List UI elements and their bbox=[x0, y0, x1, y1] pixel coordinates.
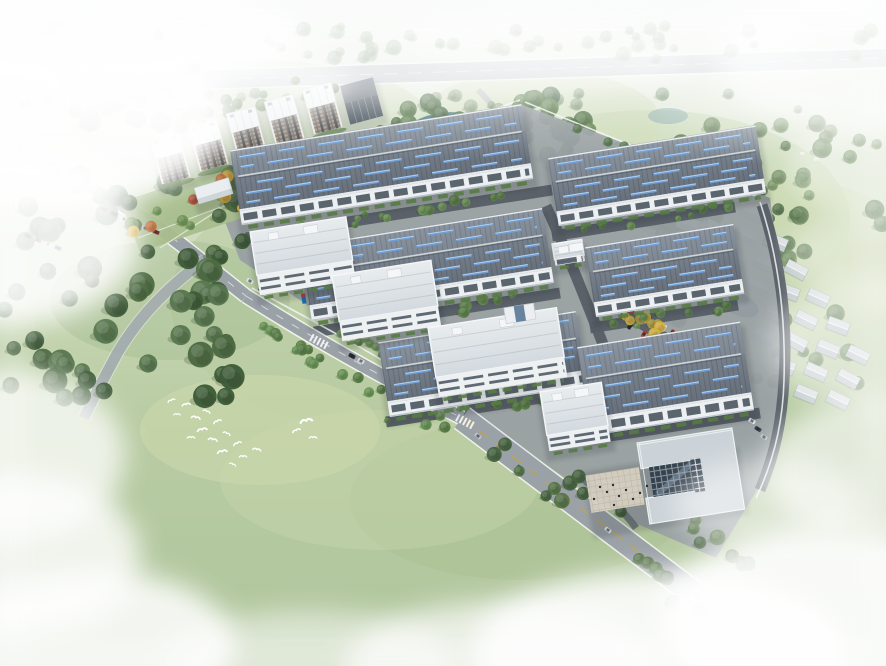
aerial-rendering-canvas bbox=[0, 0, 886, 666]
person bbox=[646, 485, 648, 487]
person bbox=[599, 486, 601, 488]
person bbox=[613, 504, 615, 506]
person bbox=[618, 495, 620, 497]
person bbox=[593, 498, 595, 500]
person bbox=[632, 498, 634, 500]
person bbox=[625, 489, 627, 491]
person bbox=[606, 491, 608, 493]
flatted-factory-f4 bbox=[536, 382, 616, 462]
person bbox=[639, 492, 641, 494]
industrial-park-rendering bbox=[0, 0, 886, 666]
person bbox=[612, 484, 614, 486]
